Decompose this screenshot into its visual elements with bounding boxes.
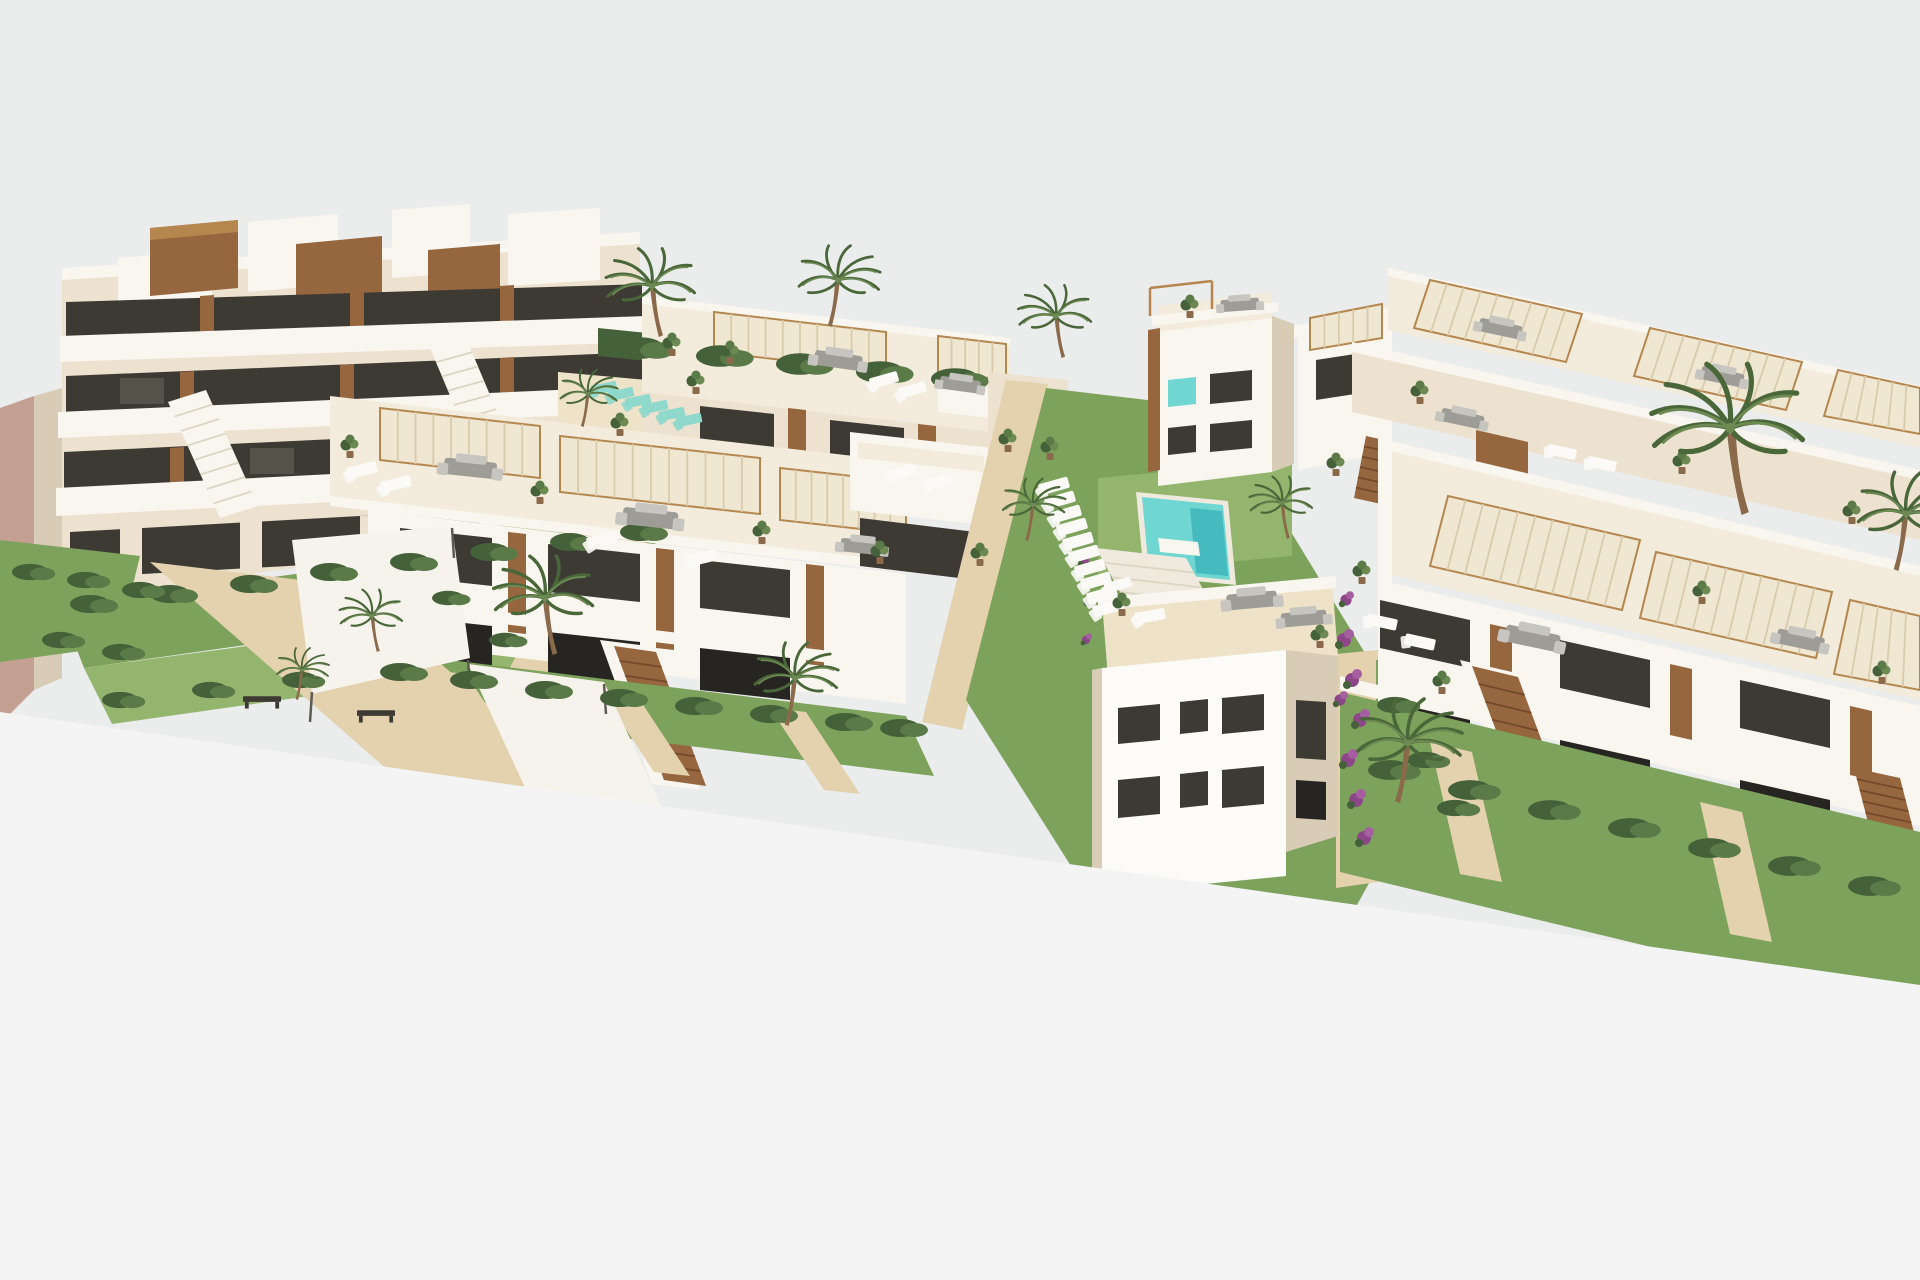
complex-render-svg [0, 0, 1920, 1280]
turquoise-glass-panel [1168, 377, 1196, 407]
render-image [0, 0, 1920, 1280]
